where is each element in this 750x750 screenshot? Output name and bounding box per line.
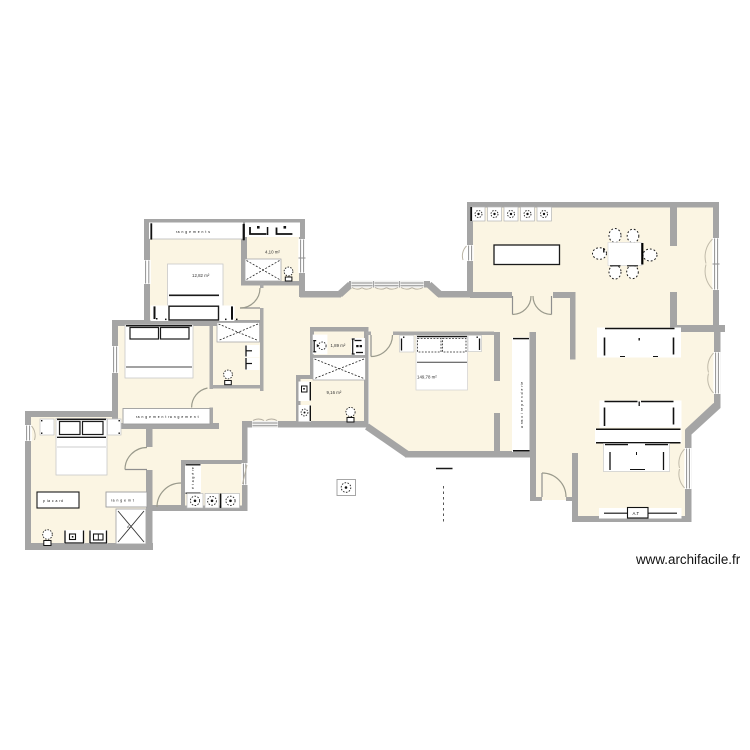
- svg-text:www.archifacile.fr: www.archifacile.fr: [635, 552, 741, 567]
- svg-text:12,82 m²: 12,82 m²: [192, 273, 210, 278]
- svg-text:ra n g e m t: ra n g e m t: [111, 499, 134, 503]
- svg-text:ra n g e m e n t ra n g e m e: ra n g e m e n t ra n g e m e n t: [136, 415, 199, 419]
- svg-text:p la c a rd: p la c a rd: [43, 499, 63, 503]
- svg-text:A: A: [127, 524, 130, 529]
- svg-text:9,16 m²: 9,16 m²: [327, 390, 342, 395]
- svg-text:a rm o i re p e n d e rie: a rm o i re p e n d e rie: [520, 381, 524, 428]
- svg-text:A.T: A.T: [633, 511, 640, 516]
- svg-text:é t a g è re: é t a g è re: [191, 467, 195, 489]
- svg-text:149,78 m²: 149,78 m²: [417, 375, 437, 380]
- svg-text:ra n g e m e n t s: ra n g e m e n t s: [176, 230, 210, 234]
- svg-text:1,89 m²: 1,89 m²: [331, 343, 346, 348]
- svg-text:4,10 m²: 4,10 m²: [265, 250, 280, 255]
